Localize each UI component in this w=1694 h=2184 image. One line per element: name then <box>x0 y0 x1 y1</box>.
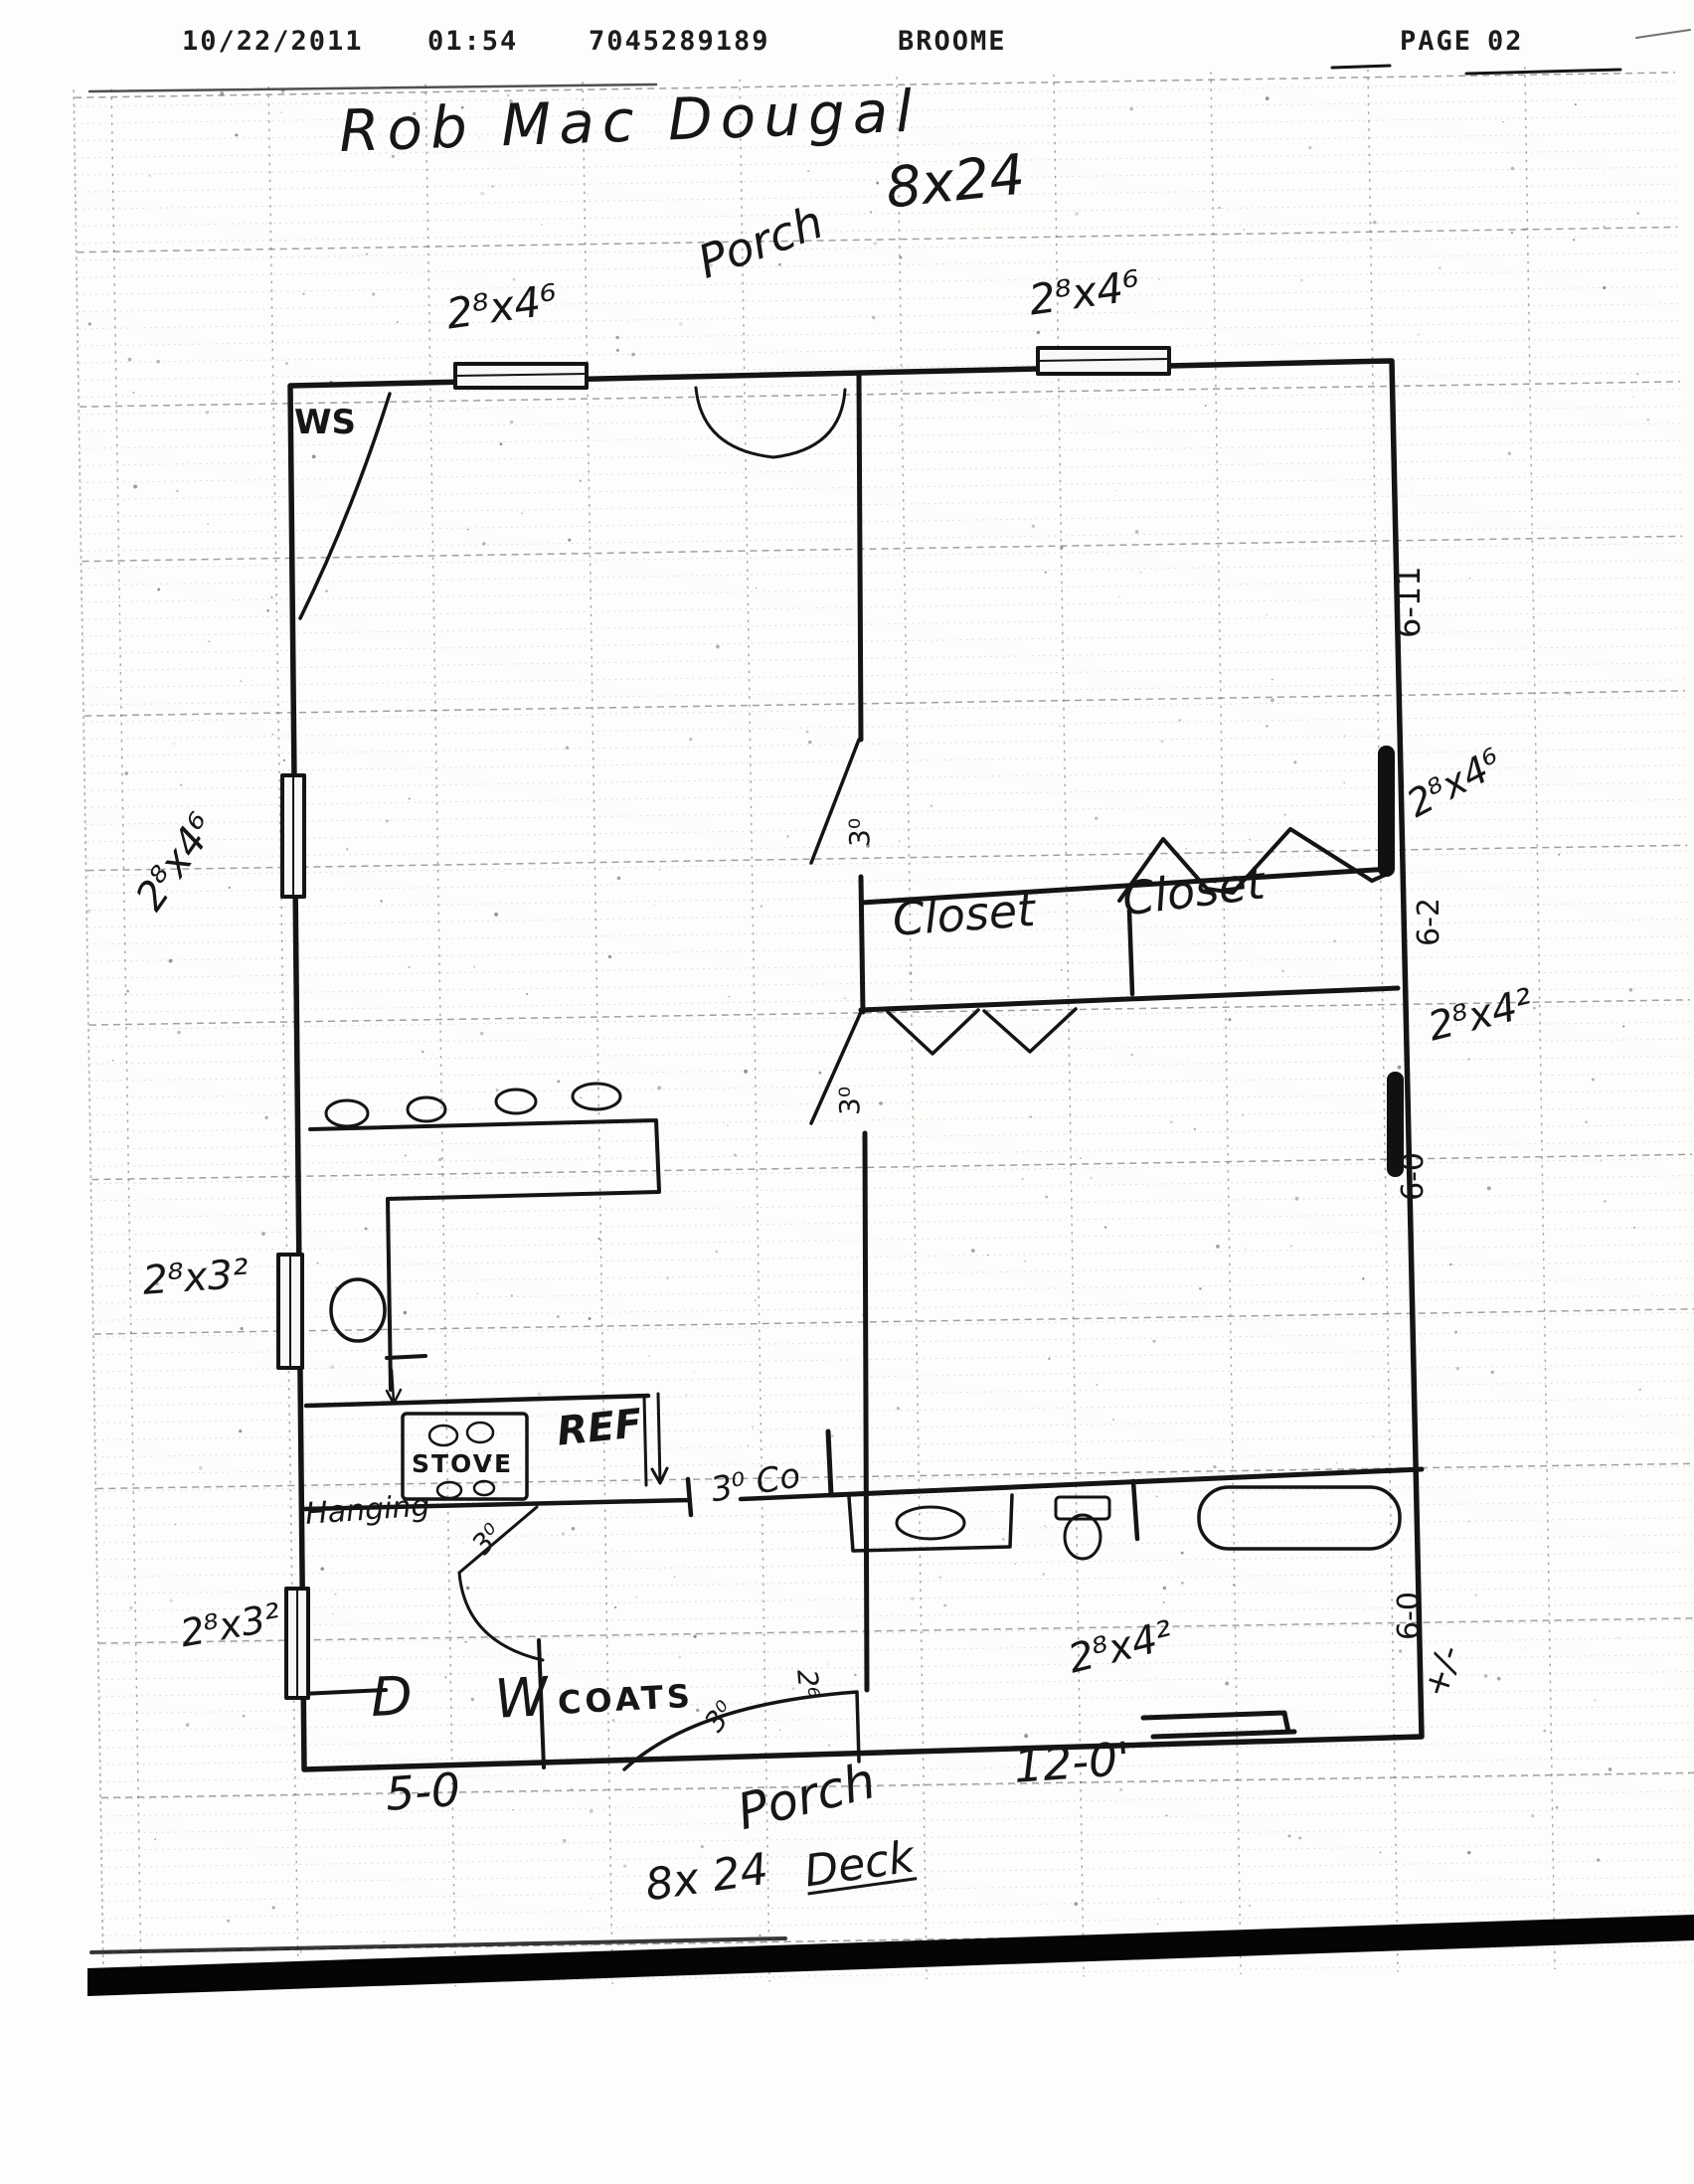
noise-speck <box>678 1656 680 1658</box>
noise-speck <box>805 731 808 734</box>
grid-line <box>425 84 455 1987</box>
noise-speck <box>176 490 178 492</box>
noise-speck <box>480 1032 484 1036</box>
noise-speck <box>648 1356 649 1357</box>
noise-speck <box>330 1365 334 1369</box>
noise-speck <box>1467 1851 1470 1854</box>
noise-speck <box>1266 96 1270 100</box>
grid-line <box>95 1381 1694 1406</box>
noise-speck <box>1290 1246 1292 1248</box>
noise-speck <box>1585 1121 1587 1123</box>
noise-speck <box>229 887 231 889</box>
noise-speck <box>124 771 128 775</box>
noise-speck <box>1129 107 1133 111</box>
noise-speck <box>617 877 621 881</box>
noise-speck <box>568 539 571 542</box>
noise-speck <box>1603 226 1606 229</box>
window-symbol-bottom-right <box>1143 1713 1294 1737</box>
noise-speck <box>312 454 316 458</box>
noise-speck <box>693 1635 696 1638</box>
noise-speck <box>1573 239 1575 241</box>
grid-line <box>897 77 927 1979</box>
noise-speck <box>563 1839 567 1843</box>
door-bottom-label: 2⁶ <box>790 1668 825 1700</box>
noise-speck <box>1484 1674 1488 1678</box>
noise-speck <box>227 1920 230 1923</box>
noise-speck <box>280 111 281 112</box>
noise-speck <box>808 741 811 744</box>
noise-speck <box>1194 1128 1196 1130</box>
counter-fixture-oval <box>573 1084 620 1109</box>
noise-speck <box>562 1532 565 1535</box>
noise-speck <box>126 990 129 993</box>
grid-line <box>99 1620 1694 1645</box>
noise-speck <box>1233 1584 1235 1586</box>
grid-line <box>1368 70 1398 1972</box>
noise-speck <box>300 1951 302 1953</box>
noise-speck <box>405 403 406 404</box>
grid-line <box>103 1894 1694 1919</box>
noise-speck <box>1024 1260 1026 1262</box>
noise-speck <box>1158 1899 1159 1900</box>
noise-speck <box>444 1676 446 1678</box>
grid-line <box>91 1154 1692 1179</box>
ws-label: WS <box>294 403 356 442</box>
noise-speck <box>1266 725 1268 727</box>
noise-speck <box>1633 1227 1635 1229</box>
noise-speck <box>264 1116 267 1119</box>
noise-speck <box>1344 735 1346 737</box>
noise-speck <box>1270 698 1274 702</box>
noise-speck <box>1246 1248 1248 1250</box>
noise-speck <box>744 1070 748 1074</box>
noise-speck <box>701 1845 704 1848</box>
noise-speck <box>1243 229 1245 231</box>
noise-speck <box>511 1294 513 1296</box>
noise-speck <box>571 1787 573 1789</box>
grid-line <box>94 1329 1694 1354</box>
noise-speck <box>334 1594 336 1596</box>
noise-speck <box>1032 525 1035 528</box>
noise-speck <box>1153 1340 1156 1343</box>
noise-speck <box>409 966 411 968</box>
noise-speck <box>612 1719 615 1722</box>
door-hall-lower-label: 3⁰ <box>833 1087 866 1115</box>
noise-speck <box>466 1587 469 1590</box>
toilet-oval <box>331 1279 385 1341</box>
scan-band <box>87 1915 1694 1996</box>
noise-speck <box>748 1445 749 1446</box>
noise-speck <box>1271 679 1273 681</box>
noise-speck <box>272 1906 275 1909</box>
noise-speck <box>581 1096 583 1098</box>
grid-line <box>98 1603 1694 1628</box>
noise-speck <box>1180 1902 1182 1904</box>
noise-speck <box>828 1663 830 1665</box>
grid-line <box>101 1791 1694 1816</box>
burner <box>467 1423 493 1442</box>
dim-bottom-left-label: 5-0 <box>384 1763 462 1821</box>
page-underline <box>1332 66 1620 74</box>
noise-speck <box>1160 740 1163 743</box>
grid-line <box>740 80 769 1982</box>
noise-speck <box>615 336 619 340</box>
noise-speck <box>971 1249 975 1253</box>
noise-speck <box>1284 814 1286 816</box>
dim-right-bottom-label: 6-0 <box>1392 1592 1427 1640</box>
noise-speck <box>1228 1018 1231 1021</box>
noise-speck <box>1045 1525 1046 1526</box>
grid-line <box>99 1618 1694 1643</box>
noise-speck <box>1575 103 1577 105</box>
noise-speck <box>1074 1902 1078 1906</box>
noise-speck <box>482 542 485 545</box>
noise-speck <box>1523 228 1526 231</box>
noise-speck <box>1059 726 1060 727</box>
noise-speck <box>756 588 757 588</box>
noise-speck <box>1249 1905 1251 1907</box>
noise-speck <box>525 1657 526 1658</box>
noise-speck <box>870 211 872 213</box>
noise-speck <box>1439 266 1441 269</box>
noise-speck <box>608 955 611 958</box>
noise-speck <box>1525 1647 1526 1648</box>
noise-speck <box>1080 1157 1082 1159</box>
noise-speck <box>496 1089 499 1092</box>
grid-line <box>94 1347 1694 1372</box>
grid-line <box>98 1552 1694 1577</box>
dryer-label: D <box>370 1665 414 1729</box>
noise-speck <box>616 349 619 352</box>
dim-bottom-right-label: 12-0' <box>1012 1732 1132 1793</box>
noise-speck <box>1096 1384 1098 1386</box>
noise-speck <box>180 783 183 786</box>
vanity-basin <box>897 1507 964 1539</box>
noise-speck <box>500 442 503 445</box>
window-symbol-right-upper <box>1378 746 1395 877</box>
noise-speck <box>240 1327 243 1330</box>
noise-speck <box>133 485 137 489</box>
noise-speck <box>1225 1681 1229 1685</box>
noise-speck <box>1556 1806 1559 1809</box>
noise-speck <box>361 253 363 255</box>
noise-speck <box>1538 911 1540 913</box>
noise-speck <box>149 175 151 177</box>
noise-speck <box>1002 1538 1005 1541</box>
noise-speck <box>170 1598 173 1601</box>
noise-speck <box>623 1864 627 1868</box>
noise-speck <box>1181 1552 1184 1555</box>
noise-speck <box>1636 373 1638 375</box>
noise-speck <box>1373 1435 1375 1437</box>
noise-speck <box>1042 1573 1045 1576</box>
noise-speck <box>157 588 160 591</box>
grid-line <box>96 1432 1694 1457</box>
noise-speck <box>1095 816 1098 819</box>
noise-speck <box>1343 782 1345 784</box>
grid-line <box>268 86 298 1989</box>
noise-speck <box>1288 1834 1291 1837</box>
noise-speck <box>1373 221 1377 225</box>
noise-speck <box>1569 693 1572 696</box>
noise-speck <box>1566 693 1568 695</box>
noise-speck <box>386 820 389 823</box>
noise-speck <box>587 193 588 194</box>
noise-speck <box>521 512 523 514</box>
noise-speck <box>693 1372 694 1373</box>
noise-speck <box>909 971 913 975</box>
noise-speck <box>572 1527 576 1531</box>
noise-speck <box>510 420 513 423</box>
grid-line <box>97 1535 1694 1560</box>
noise-speck <box>207 523 209 525</box>
noise-speck <box>302 293 304 295</box>
noise-speck <box>383 1940 385 1942</box>
noise-speck <box>1449 1263 1451 1265</box>
noise-speck <box>899 424 901 426</box>
noise-speck <box>987 1254 989 1256</box>
noise-speck <box>752 1427 754 1428</box>
noise-speck <box>512 1809 514 1811</box>
noise-speck <box>1632 396 1634 398</box>
noise-speck <box>897 1407 900 1410</box>
noise-speck <box>112 1060 114 1062</box>
noise-speck <box>243 1715 245 1717</box>
noise-speck <box>151 1960 152 1961</box>
noise-speck <box>1037 331 1040 334</box>
noise-speck <box>1487 1186 1491 1190</box>
noise-speck <box>1398 1066 1402 1070</box>
noise-speck <box>1104 1226 1107 1229</box>
noise-speck <box>208 641 210 643</box>
noise-speck <box>1216 1245 1220 1249</box>
counter-fixture-oval <box>408 1097 445 1121</box>
noise-speck <box>1210 1782 1211 1783</box>
closet-door-marks <box>888 1009 1076 1054</box>
grid-line <box>83 536 1683 561</box>
noise-speck <box>1112 1419 1114 1421</box>
grid-line <box>1211 72 1241 1974</box>
noise-speck <box>734 1154 737 1157</box>
noise-speck <box>831 1434 834 1437</box>
noise-speck <box>175 1524 176 1525</box>
noise-speck <box>1629 988 1633 992</box>
grid-line <box>96 1466 1694 1491</box>
noise-speck <box>1592 1078 1595 1081</box>
noise-speck <box>1333 939 1335 941</box>
noise-speck <box>169 959 173 963</box>
exterior-walls <box>290 361 1422 1769</box>
noise-speck <box>1502 121 1503 122</box>
noise-speck <box>1165 1814 1167 1816</box>
noise-speck <box>1308 146 1311 149</box>
noise-speck <box>614 1606 616 1608</box>
grid-line <box>95 1398 1694 1423</box>
noise-speck <box>631 353 635 357</box>
noise-speck <box>1418 334 1420 336</box>
kitchen-counter <box>310 1120 659 1390</box>
noise-speck <box>1604 1200 1607 1203</box>
noise-speck <box>876 182 879 185</box>
noise-speck <box>317 1262 319 1264</box>
noise-speck <box>235 134 238 137</box>
noise-speck <box>1638 1389 1641 1392</box>
ref-label: REF <box>555 1401 644 1455</box>
noise-speck <box>1558 854 1560 856</box>
noise-speck <box>589 1317 592 1320</box>
noise-speck <box>1511 232 1513 234</box>
noise-speck <box>654 904 655 905</box>
grid-line <box>102 1808 1694 1833</box>
noise-speck <box>1213 1465 1216 1468</box>
noise-speck <box>1118 595 1119 596</box>
noise-speck <box>1543 1730 1546 1733</box>
noise-speck <box>538 1392 542 1396</box>
noise-speck <box>88 322 91 325</box>
noise-speck <box>1170 1120 1173 1123</box>
grid-line <box>95 1364 1694 1389</box>
noise-speck <box>1185 848 1187 850</box>
noise-speck <box>465 1641 467 1643</box>
toilet-bowl <box>1065 1515 1101 1559</box>
noise-speck <box>404 1311 407 1314</box>
noise-speck <box>566 747 569 750</box>
grid-line <box>101 1774 1694 1799</box>
noise-speck <box>1474 1594 1476 1596</box>
noise-speck <box>272 734 274 736</box>
noise-speck <box>591 1898 592 1899</box>
noise-speck <box>818 1072 821 1075</box>
noise-speck <box>239 1429 242 1432</box>
window-left-mid-label: 2⁸x3² <box>141 1252 251 1304</box>
grid-line <box>74 89 103 1992</box>
noise-speck <box>1178 719 1181 722</box>
noise-speck <box>557 1315 560 1318</box>
noise-speck <box>261 1232 265 1236</box>
counter-fixture-oval <box>496 1090 536 1113</box>
noise-speck <box>874 242 878 246</box>
noise-speck <box>541 224 543 226</box>
dim-right-upper-label: 6-11 <box>1390 566 1428 638</box>
noise-speck <box>872 316 876 320</box>
grid-line <box>96 1463 1694 1488</box>
noise-speck <box>1617 1637 1618 1638</box>
dim-right-lower-label: 6-0 <box>1396 1152 1431 1201</box>
noise-speck <box>1491 1371 1494 1374</box>
noise-speck <box>1115 490 1116 491</box>
closet-left-label: Closet <box>891 883 1037 946</box>
noise-speck <box>755 1299 757 1301</box>
stove-label: STOVE <box>412 1449 513 1478</box>
noise-speck <box>1024 1734 1028 1738</box>
noise-speck <box>1139 572 1141 574</box>
noise-speck <box>716 1251 719 1254</box>
noise-speck <box>1135 530 1139 534</box>
grid-line <box>96 1449 1694 1474</box>
noise-speck <box>526 993 528 995</box>
ref-bay-rails <box>644 1394 667 1485</box>
dim-right-mid-label: 6-2 <box>1412 898 1446 946</box>
noise-speck <box>1205 405 1207 407</box>
noise-speck <box>1157 1924 1158 1925</box>
porch-door-swing <box>696 388 845 457</box>
noise-speck <box>598 1238 600 1240</box>
noise-speck <box>807 170 809 172</box>
corner-mark <box>1636 30 1690 38</box>
noise-speck <box>284 241 285 242</box>
noise-speck <box>241 681 242 682</box>
noise-speck <box>325 589 327 591</box>
noise-speck <box>716 645 720 649</box>
noise-speck <box>1030 1115 1032 1117</box>
noise-speck <box>1468 1521 1469 1522</box>
noise-speck <box>422 1051 423 1053</box>
noise-speck <box>659 869 660 870</box>
noise-speck <box>943 1603 946 1606</box>
noise-speck <box>491 185 493 187</box>
grid-line <box>85 691 1685 716</box>
noise-speck <box>199 1466 203 1470</box>
noise-speck <box>186 1723 190 1727</box>
noise-speck <box>636 1596 637 1597</box>
noise-speck <box>1300 278 1303 281</box>
noise-speck <box>397 321 399 323</box>
noise-speck <box>1497 1677 1501 1681</box>
grid-line <box>101 1772 1694 1797</box>
noise-speck <box>471 1698 474 1701</box>
noise-speck <box>480 192 484 196</box>
door-hall-upper-label: 3⁰ <box>843 818 876 847</box>
noise-speck <box>1242 1114 1244 1116</box>
noise-speck <box>1281 969 1284 972</box>
fax-floor-plan-page: 10/22/2011 01:54 7045289189 BROOME PAGE … <box>0 0 1694 2184</box>
noise-speck <box>759 1934 761 1936</box>
vanity-outline <box>849 1495 1012 1551</box>
noise-speck <box>900 256 903 259</box>
noise-speck <box>86 910 90 914</box>
noise-speck <box>438 1158 441 1161</box>
noise-speck <box>1399 1649 1402 1652</box>
noise-speck <box>128 358 132 362</box>
noise-speck <box>1531 1814 1534 1817</box>
noise-speck <box>580 480 582 482</box>
noise-speck <box>129 1606 133 1610</box>
noise-speck <box>674 1576 675 1577</box>
noise-speck <box>1454 1331 1457 1334</box>
noise-speck <box>1119 1788 1122 1791</box>
noise-speck <box>729 996 730 997</box>
counter-fixture-oval <box>326 1100 368 1126</box>
noise-speck <box>473 965 476 968</box>
noise-speck <box>899 840 901 842</box>
noise-speck <box>266 609 269 612</box>
noise-speck <box>365 1228 368 1231</box>
noise-speck <box>1298 1836 1301 1839</box>
noise-speck <box>409 798 411 800</box>
noise-speck <box>1181 1582 1184 1585</box>
noise-speck <box>283 759 285 761</box>
noise-speck <box>1090 1177 1093 1180</box>
burner <box>429 1426 457 1445</box>
noise-speck <box>1456 1367 1459 1370</box>
noise-speck <box>938 1576 941 1579</box>
bath-partition <box>1133 1481 1137 1539</box>
noise-speck <box>477 1292 479 1294</box>
noise-speck <box>1336 1462 1338 1464</box>
noise-speck <box>132 392 134 394</box>
noise-speck <box>346 848 348 850</box>
noise-speck <box>844 997 846 999</box>
